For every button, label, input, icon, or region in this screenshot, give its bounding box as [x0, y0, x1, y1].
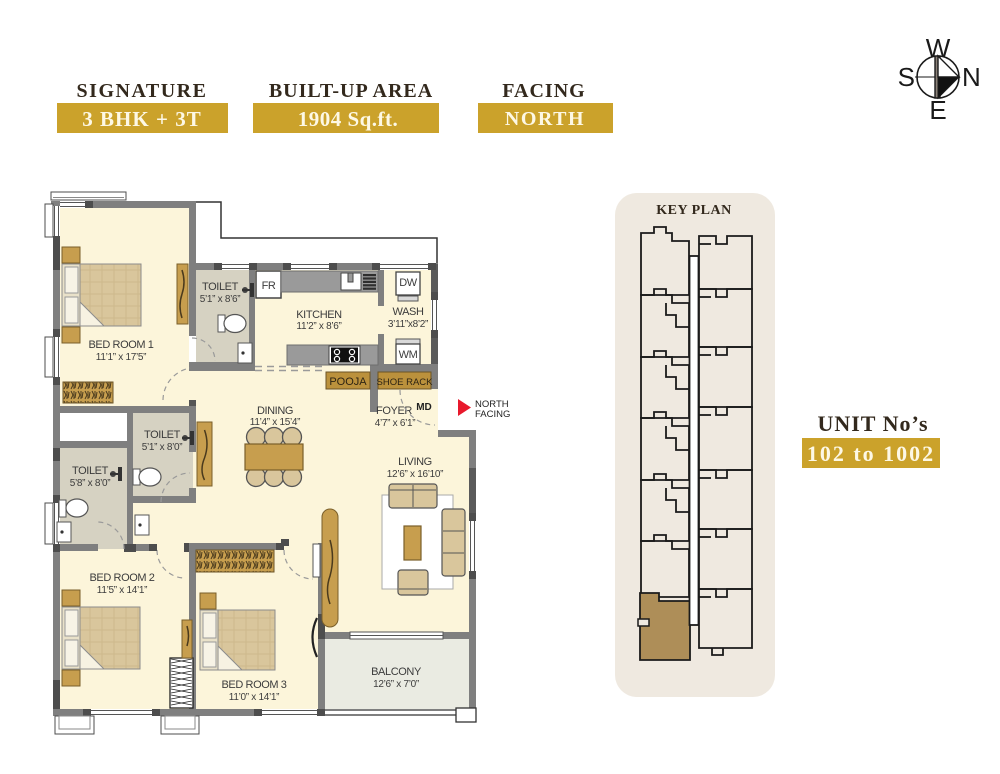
svg-text:SHOE RACK: SHOE RACK	[377, 377, 434, 388]
svg-text:E: E	[929, 95, 946, 125]
svg-text:12’6” x 7’0”: 12’6” x 7’0”	[373, 679, 419, 690]
svg-text:102 to 1002: 102 to 1002	[807, 441, 935, 466]
svg-text:BED ROOM 3: BED ROOM 3	[221, 679, 286, 691]
svg-text:11’4” x 15’4”: 11’4” x 15’4”	[250, 417, 300, 428]
svg-text:WASH: WASH	[393, 306, 424, 318]
svg-text:BED ROOM 2: BED ROOM 2	[89, 572, 154, 584]
svg-text:BUILT-UP AREA: BUILT-UP AREA	[269, 80, 433, 102]
svg-text:NORTH: NORTH	[505, 108, 585, 130]
svg-text:11’5” x 14’1”: 11’5” x 14’1”	[97, 585, 147, 596]
svg-text:11’1” x 17’5”: 11’1” x 17’5”	[96, 352, 146, 363]
svg-text:11’0” x 14’1”: 11’0” x 14’1”	[229, 692, 279, 703]
svg-text:DINING: DINING	[257, 405, 293, 417]
svg-text:SIGNATURE: SIGNATURE	[77, 80, 208, 102]
svg-text:5’8” x 8’0”: 5’8” x 8’0”	[70, 478, 111, 489]
svg-text:12’6” x 16’10”: 12’6” x 16’10”	[387, 469, 443, 480]
svg-text:W: W	[926, 33, 951, 63]
svg-text:S: S	[898, 62, 915, 92]
svg-text:3 BHK + 3T: 3 BHK + 3T	[82, 107, 201, 131]
svg-text:KEY PLAN: KEY PLAN	[656, 203, 731, 218]
svg-text:TOILET: TOILET	[202, 281, 239, 293]
svg-text:TOILET: TOILET	[144, 429, 181, 441]
svg-text:1904 Sq.ft.: 1904 Sq.ft.	[298, 107, 399, 131]
svg-text:5’1” x 8’6”: 5’1” x 8’6”	[200, 294, 241, 305]
svg-text:KITCHEN: KITCHEN	[296, 309, 342, 321]
svg-text:4’7” x 6’1”: 4’7” x 6’1”	[375, 418, 416, 429]
svg-text:BALCONY: BALCONY	[371, 666, 422, 678]
svg-text:FACING: FACING	[502, 80, 585, 102]
svg-text:5’1” x 8’0”: 5’1” x 8’0”	[142, 442, 183, 453]
svg-text:N: N	[962, 62, 981, 92]
svg-text:DW: DW	[399, 277, 418, 289]
svg-text:BED ROOM 1: BED ROOM 1	[88, 339, 153, 351]
svg-text:POOJA: POOJA	[329, 376, 367, 388]
svg-text:WM: WM	[399, 349, 418, 361]
svg-text:MD: MD	[416, 402, 432, 413]
svg-text:TOILET: TOILET	[72, 465, 109, 477]
svg-text:FR: FR	[262, 280, 276, 292]
svg-text:UNIT No’s: UNIT No’s	[817, 411, 928, 436]
svg-text:LIVING: LIVING	[398, 456, 432, 468]
svg-text:11’2” x 8’6”: 11’2” x 8’6”	[296, 321, 341, 332]
svg-text:FACING: FACING	[475, 409, 510, 420]
svg-text:3’11”x8’2”: 3’11”x8’2”	[388, 319, 428, 330]
